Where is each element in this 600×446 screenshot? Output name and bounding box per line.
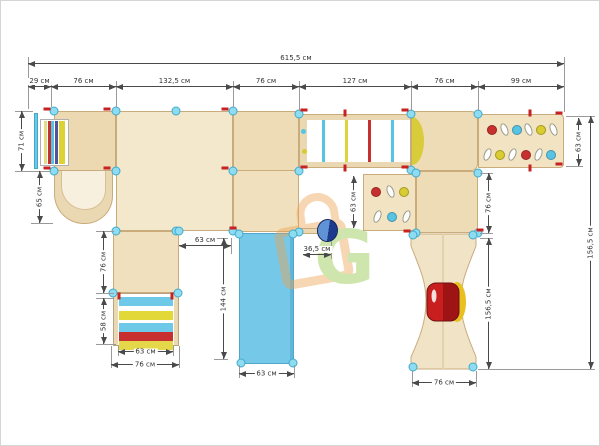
red-joint-mark xyxy=(344,165,347,172)
climb-hold-dot xyxy=(487,125,497,135)
lower-left-platform xyxy=(113,231,179,293)
dim-label: 63 см xyxy=(193,237,217,244)
red-joint-mark xyxy=(44,167,51,170)
dim-label: 127 см xyxy=(341,78,370,85)
red-joint-mark xyxy=(118,293,121,300)
dim-label: 99 см xyxy=(509,78,533,85)
rung xyxy=(391,120,394,162)
rung xyxy=(368,120,371,162)
climb-hold-dot xyxy=(546,150,556,160)
right-column-platform xyxy=(416,171,478,233)
bridge xyxy=(299,114,411,168)
board-holds-row2 xyxy=(484,148,556,161)
bridge-post-hold-yellow xyxy=(302,149,307,154)
dim-label: 65 см xyxy=(37,185,44,209)
dim-seg-6: 76 см xyxy=(411,86,478,87)
red-joint-mark xyxy=(301,109,308,112)
connector-dot xyxy=(235,230,244,239)
dim-label: 29 см xyxy=(27,78,51,85)
red-joint-mark xyxy=(104,167,111,170)
dim-entry-ladder-height: 71 см xyxy=(21,111,22,171)
climb-hold-dot xyxy=(512,125,522,135)
dim-label: 76 см xyxy=(71,78,95,85)
climb-hold-oval xyxy=(372,209,383,224)
dim-label: 63 см xyxy=(576,130,583,154)
extension-line xyxy=(566,166,583,167)
climb-hold-oval xyxy=(548,122,559,137)
bridge-rungs xyxy=(312,120,404,162)
climb-hold-dot xyxy=(387,212,397,222)
red-joint-mark xyxy=(529,165,532,172)
red-joint-mark xyxy=(222,167,229,170)
climb-hold-oval xyxy=(482,147,493,162)
climb-hold-dot xyxy=(495,150,505,160)
step-bands xyxy=(119,297,173,350)
extension-line xyxy=(15,171,51,172)
bridge-post-hold-cyan xyxy=(301,129,306,134)
dim-label: 132,5 см xyxy=(157,78,192,85)
platform-b-lower xyxy=(233,170,299,232)
red-joint-mark xyxy=(344,110,347,117)
dim-bag-offset: 36,5 см xyxy=(303,254,331,255)
red-joint-mark xyxy=(171,293,174,300)
dim-right-total-depth: 156,5 см xyxy=(590,116,591,369)
dim-steps-outer-width: 76 см xyxy=(111,364,179,365)
connector-dot xyxy=(229,107,238,116)
dim-seg-2: 76 см xyxy=(51,86,116,87)
dim-slide-length: 144 см xyxy=(223,238,224,359)
rung xyxy=(44,121,47,164)
climb-hold-oval xyxy=(507,147,518,162)
connector-dot xyxy=(174,289,183,298)
dim-label: 76 см xyxy=(133,362,157,369)
connector-dot xyxy=(289,359,298,368)
central-platform xyxy=(116,111,233,231)
connector-dot xyxy=(412,169,421,178)
dim-label: 144 см xyxy=(221,284,228,313)
red-joint-mark xyxy=(477,229,484,232)
rung xyxy=(322,120,325,162)
seat-red-dark xyxy=(443,283,459,321)
extension-line xyxy=(478,369,595,370)
climb-hold-oval xyxy=(533,147,544,162)
step-band xyxy=(119,323,173,332)
climb-hold-dot xyxy=(536,125,546,135)
dim-climb-board-depth: 63 см xyxy=(578,118,579,166)
step-ladder-rail-left xyxy=(114,294,118,345)
bridge-post-strip xyxy=(300,115,307,167)
dim-label: 156,5 см xyxy=(486,286,493,321)
platform-b-upper xyxy=(233,111,299,171)
climb-hold-dot xyxy=(399,187,409,197)
panel-holds-row2 xyxy=(374,210,410,223)
connector-dot xyxy=(112,107,121,116)
yellow-half-disc xyxy=(412,117,424,165)
entry-ladder-pole xyxy=(34,113,38,169)
connector-dot xyxy=(289,230,298,239)
red-joint-mark xyxy=(230,227,237,230)
red-joint-mark xyxy=(556,163,563,166)
climb-hold-oval xyxy=(523,122,534,137)
dim-label: 76 см xyxy=(101,250,108,274)
rung xyxy=(48,121,51,164)
slide xyxy=(239,233,294,364)
dim-label: 58 см xyxy=(101,309,108,333)
connector-dot xyxy=(175,227,184,236)
bridge-rail-bottom xyxy=(300,162,410,167)
dim-label: 63 см xyxy=(133,349,157,356)
dim-seg-5: 127 см xyxy=(299,86,411,87)
extension-line xyxy=(294,365,295,378)
entry-ladder-rungs xyxy=(43,121,66,164)
dim-label: 63 см xyxy=(351,190,358,214)
extension-line xyxy=(214,359,228,360)
red-joint-mark xyxy=(44,108,51,111)
dim-climb-panel-depth: 63 см xyxy=(353,176,354,228)
connector-dot xyxy=(237,359,246,368)
red-joint-mark xyxy=(402,166,409,169)
climb-panel xyxy=(363,174,416,231)
dim-ramp-width: 76 см xyxy=(412,382,476,383)
step-band xyxy=(119,297,173,306)
connector-dot xyxy=(112,167,121,176)
dim-seg-3: 132,5 см xyxy=(116,86,233,87)
dim-label: 71 см xyxy=(19,129,26,153)
step-band xyxy=(119,311,173,320)
dim-label: 156,5 см xyxy=(588,225,595,260)
extension-line xyxy=(31,223,53,224)
step-ladder xyxy=(113,293,179,346)
extension-line xyxy=(231,238,232,254)
dim-slide-width: 63 см xyxy=(239,373,294,374)
extension-line xyxy=(179,346,180,368)
rung xyxy=(51,121,54,164)
seat-highlight xyxy=(432,290,437,303)
extension-line xyxy=(476,371,477,387)
red-joint-mark xyxy=(404,230,411,233)
extension-line xyxy=(480,233,493,234)
board-holds-row1 xyxy=(487,123,557,136)
extension-line xyxy=(96,293,114,294)
step-ladder-rail-right xyxy=(174,294,178,345)
rung xyxy=(55,121,58,164)
dim-tunnel-depth: 65 см xyxy=(39,171,40,223)
dim-left-column-depth: 76 см xyxy=(103,231,104,293)
red-joint-mark xyxy=(222,108,229,111)
rung xyxy=(59,121,65,164)
dim-seg-4: 76 см xyxy=(233,86,299,87)
entry-ladder xyxy=(40,119,69,166)
dim-label: 63 см xyxy=(254,371,278,378)
playground-plan-drawing: G 615,5 см 29 см 76 см 132,5 см 76 см 12… xyxy=(0,0,600,446)
connector-dot xyxy=(50,107,59,116)
climb-hold-dot xyxy=(521,150,531,160)
climb-hold-oval xyxy=(401,209,412,224)
step-band xyxy=(119,332,173,341)
dim-steps-depth: 58 см xyxy=(103,298,104,344)
climb-board xyxy=(478,114,564,168)
dim-label: 36,5 см xyxy=(302,246,333,253)
red-joint-mark xyxy=(402,109,409,112)
dim-right-column-depth: 76 см xyxy=(488,173,489,233)
connector-dot xyxy=(409,363,418,372)
climb-hold-oval xyxy=(499,122,510,137)
red-joint-mark xyxy=(529,110,532,117)
climb-hold-oval xyxy=(384,184,395,199)
red-joint-mark xyxy=(104,108,111,111)
dim-seg-1: 29 см xyxy=(28,86,51,87)
red-joint-mark xyxy=(556,112,563,115)
extension-line xyxy=(173,346,174,356)
dim-label: 76 см xyxy=(432,380,456,387)
extension-line xyxy=(96,344,116,345)
panel-holds-row1 xyxy=(371,185,409,198)
platform-c xyxy=(411,111,478,171)
extension-line xyxy=(564,57,565,112)
bag-knob xyxy=(316,218,340,244)
ramp xyxy=(406,229,481,374)
connector-dot xyxy=(172,107,181,116)
dim-seg-7: 99 см xyxy=(478,86,564,87)
dim-ramp-length: 156,5 см xyxy=(488,238,489,369)
red-joint-mark xyxy=(301,166,308,169)
dim-total-width: 615,5 см xyxy=(28,63,564,64)
connector-dot xyxy=(229,167,238,176)
rung xyxy=(345,120,348,162)
climb-hold-dot xyxy=(371,187,381,197)
dim-label: 76 см xyxy=(254,78,278,85)
dim-label: 76 см xyxy=(486,191,493,215)
dim-label: 76 см xyxy=(432,78,456,85)
dim-steps-inner-width: 63 см xyxy=(118,351,173,352)
dim-label: 615,5 см xyxy=(278,55,313,62)
connector-dot xyxy=(469,231,478,240)
